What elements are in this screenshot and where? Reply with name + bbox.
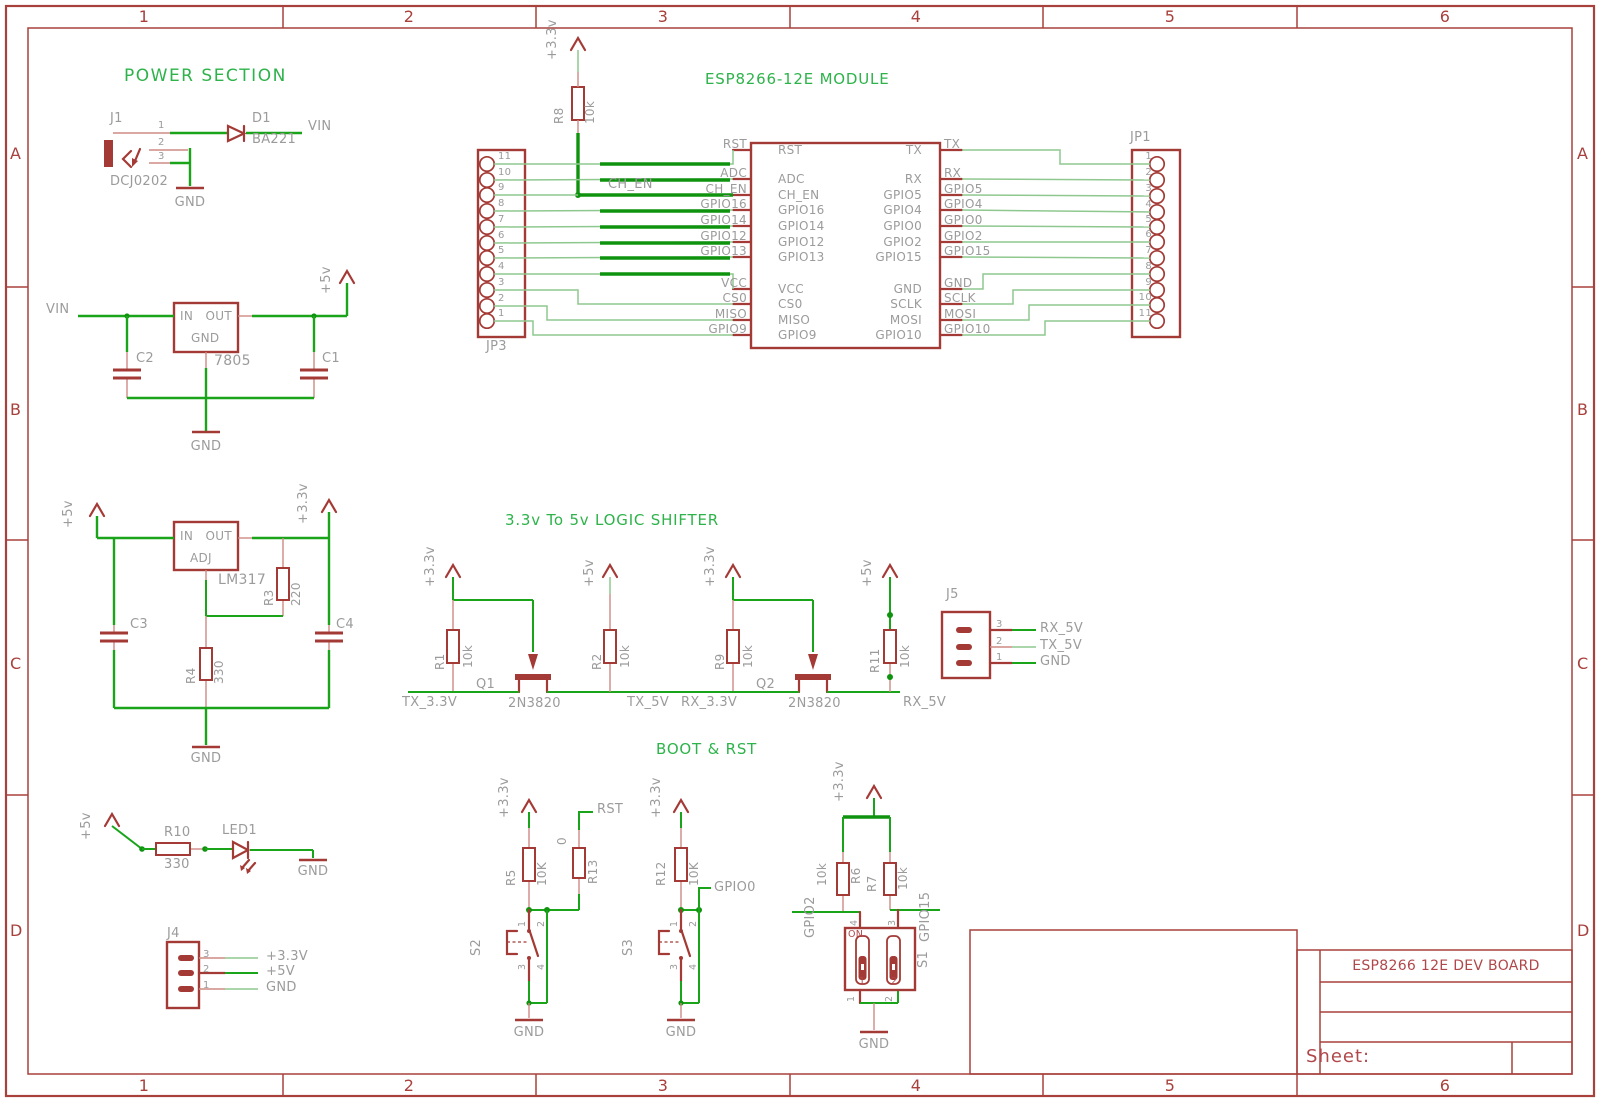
ref-j1: J1 bbox=[110, 112, 123, 126]
val-r8: 10k bbox=[584, 101, 597, 124]
jp1-pin-6: 6 bbox=[1145, 230, 1152, 241]
j1-pin-2: 2 bbox=[158, 138, 165, 149]
ref-s1: S1 bbox=[917, 951, 931, 968]
j4-pin-3: 3 bbox=[203, 950, 210, 961]
j4-net-5v: +5V bbox=[266, 965, 295, 979]
jp1-pin-10: 10 bbox=[1139, 293, 1152, 304]
ref-r10: R10 bbox=[164, 826, 190, 840]
pin-gnd: GND bbox=[894, 283, 922, 296]
gnd-label-j1: GND bbox=[175, 196, 206, 210]
pin-lm317-adj: ADJ bbox=[190, 552, 212, 565]
s2-pin-2: 2 bbox=[537, 921, 547, 927]
j5-net-tx5v: TX_5V bbox=[1040, 639, 1082, 653]
s2-pin-4: 4 bbox=[537, 964, 547, 970]
net-gpio15-right: GPIO15 bbox=[944, 245, 991, 258]
s2-pin-1: 1 bbox=[518, 921, 528, 927]
net-tx33: TX_3.3V bbox=[402, 696, 457, 710]
pin-chen: CH_EN bbox=[778, 189, 819, 202]
capacitor-c4[interactable] bbox=[315, 633, 343, 641]
val-r6: 10k bbox=[816, 863, 829, 886]
ref-r4: R4 bbox=[185, 667, 198, 684]
jp1-pin-11: 11 bbox=[1139, 309, 1152, 320]
frame-row-b-left: B bbox=[10, 402, 21, 419]
boot-s2 bbox=[507, 800, 593, 1020]
pin-gpio14: GPIO14 bbox=[778, 220, 825, 233]
ref-j5: J5 bbox=[946, 588, 959, 602]
pin-lm317-out: OUT bbox=[206, 530, 232, 543]
net-gpio9-left: GPIO9 bbox=[708, 323, 747, 336]
resistor-r3[interactable] bbox=[277, 568, 289, 600]
led-circuit bbox=[105, 814, 327, 860]
s1-pin-2: 2 bbox=[885, 996, 895, 1002]
resistor-r9[interactable] bbox=[727, 630, 739, 663]
supply-arrow-5v-b bbox=[90, 504, 104, 516]
resistor-r12[interactable] bbox=[675, 848, 687, 881]
resistor-r4[interactable] bbox=[200, 648, 212, 680]
frame-row-a-left: A bbox=[10, 146, 21, 163]
pin-gpio4: GPIO4 bbox=[883, 204, 922, 217]
pin-7805-gnd: GND bbox=[191, 332, 219, 345]
s2-pin-3: 3 bbox=[518, 964, 528, 970]
val-r12: 10K bbox=[688, 862, 701, 886]
title-esp-module: ESP8266-12E MODULE bbox=[705, 72, 889, 88]
frame-row-d-left: D bbox=[10, 923, 23, 940]
frame-col-4-bottom: 4 bbox=[911, 1078, 921, 1095]
j4-pin-2: 2 bbox=[203, 965, 210, 976]
ref-c2: C2 bbox=[136, 352, 154, 366]
j4-pin-1: 1 bbox=[203, 981, 210, 992]
net-vcc-left: VCC bbox=[721, 277, 747, 290]
pin-lm317-in: IN bbox=[180, 530, 193, 543]
pin-rx: RX bbox=[905, 173, 922, 186]
net-label-ch-en-wire: CH_EN bbox=[608, 178, 653, 192]
j1-pin-1: 1 bbox=[158, 121, 165, 132]
ref-r7: R7 bbox=[866, 875, 879, 892]
frame-row-a-right: A bbox=[1577, 146, 1588, 163]
rail-3v3-r1: +3.3v bbox=[424, 546, 438, 587]
schematic-canvas bbox=[0, 0, 1600, 1102]
j4-net-3v3: +3.3V bbox=[266, 950, 308, 964]
schematic-sheet: 1 2 3 4 5 6 1 2 3 4 5 6 A B C D A B C D … bbox=[0, 0, 1600, 1102]
capacitor-c3[interactable] bbox=[100, 633, 128, 641]
title-power-section: POWER SECTION bbox=[124, 68, 287, 86]
ref-r2: R2 bbox=[591, 653, 604, 670]
ref-r8: R8 bbox=[553, 107, 566, 124]
val-r7: 10k bbox=[897, 867, 910, 890]
rail-5v-r11: +5v bbox=[861, 559, 875, 587]
resistor-r10[interactable] bbox=[156, 843, 190, 855]
boot-s3 bbox=[659, 800, 711, 1020]
frame-col-3-top: 3 bbox=[658, 9, 668, 26]
resistor-r5[interactable] bbox=[523, 848, 535, 881]
pin-gpio9: GPIO9 bbox=[778, 329, 817, 342]
pin-gpio15: GPIO15 bbox=[875, 251, 922, 264]
ref-c1: C1 bbox=[322, 352, 340, 366]
jp3-pin-3: 3 bbox=[498, 278, 505, 289]
jp1-pin-8: 8 bbox=[1145, 262, 1152, 273]
part-lm317: LM317 bbox=[218, 573, 266, 588]
frame-col-5-bottom: 5 bbox=[1165, 1078, 1175, 1095]
s1-pin-3: 3 bbox=[888, 920, 898, 926]
part-q1: 2N3820 bbox=[508, 697, 561, 711]
title-block bbox=[970, 930, 1572, 1074]
pin-rst: RST bbox=[778, 144, 802, 157]
rail-3v3-s3: +3.3v bbox=[650, 777, 664, 818]
j5-net-rx5v: RX_5V bbox=[1040, 622, 1083, 636]
frame-col-6-top: 6 bbox=[1440, 9, 1450, 26]
gnd-label-7805: GND bbox=[191, 440, 222, 454]
pin-gpio5: GPIO5 bbox=[883, 189, 922, 202]
rail-3v3-r8: +3.3v bbox=[546, 19, 560, 60]
s1-pin-4: 4 bbox=[850, 920, 860, 926]
pin-sclk: SCLK bbox=[890, 298, 922, 311]
jp1-pin-1: 1 bbox=[1145, 152, 1152, 163]
frame-col-6-bottom: 6 bbox=[1440, 1078, 1450, 1095]
wires-7805 bbox=[78, 283, 347, 432]
jp1-pin-9: 9 bbox=[1145, 278, 1152, 289]
net-mosi-right: MOSI bbox=[944, 308, 976, 321]
s1-pin-1: 1 bbox=[847, 996, 857, 1002]
jp1-pin-2: 2 bbox=[1145, 168, 1152, 179]
net-label-vin: VIN bbox=[308, 120, 331, 134]
ref-r1: R1 bbox=[434, 653, 447, 670]
net-gpio0-s3: GPIO0 bbox=[714, 881, 756, 895]
rail-5v-7805: +5v bbox=[320, 266, 334, 294]
part-q2: 2N3820 bbox=[788, 697, 841, 711]
gnd-label-s1: GND bbox=[859, 1038, 890, 1052]
supply-arrow-3v3-a bbox=[322, 500, 336, 512]
gnd-label-s3: GND bbox=[666, 1026, 697, 1040]
frame-col-4-top: 4 bbox=[911, 9, 921, 26]
net-gpio10-right: GPIO10 bbox=[944, 323, 991, 336]
ref-j4: J4 bbox=[167, 927, 180, 941]
jp3-pin-1: 1 bbox=[498, 309, 505, 320]
gnd-label-s2: GND bbox=[514, 1026, 545, 1040]
supply-arrow-3v3-r8 bbox=[571, 38, 585, 50]
shifter-tx bbox=[408, 565, 723, 692]
net-tx-right: TX bbox=[944, 138, 960, 151]
frame-col-1-top: 1 bbox=[139, 9, 149, 26]
net-gpio5-right: GPIO5 bbox=[944, 183, 983, 196]
frame-col-2-bottom: 2 bbox=[404, 1078, 414, 1095]
ref-c3: C3 bbox=[130, 618, 148, 632]
pin-7805-in: IN bbox=[180, 310, 193, 323]
resistor-r6[interactable] bbox=[837, 863, 849, 895]
wires-module-to-jp1 bbox=[962, 150, 1150, 335]
frame-row-c-left: C bbox=[10, 656, 21, 673]
jp3-pin-2: 2 bbox=[498, 294, 505, 305]
frame-row-d-right: D bbox=[1577, 923, 1590, 940]
part-dcj0202: DCJ0202 bbox=[110, 175, 168, 189]
jp1-pin-3: 3 bbox=[1145, 184, 1152, 195]
jp3-pin-6: 6 bbox=[498, 231, 505, 242]
ref-q2: Q2 bbox=[756, 678, 775, 692]
ref-jp1: JP1 bbox=[1130, 131, 1151, 145]
s3-pin-2: 2 bbox=[689, 921, 699, 927]
frame-col-2-top: 2 bbox=[404, 9, 414, 26]
pin-mosi: MOSI bbox=[890, 314, 922, 327]
connector-j4[interactable] bbox=[167, 942, 258, 1008]
capacitor-c2[interactable] bbox=[113, 370, 141, 378]
net-tx5v: TX_5V bbox=[627, 696, 669, 710]
pin-gpio2: GPIO2 bbox=[883, 236, 922, 249]
pin-7805-out: OUT bbox=[206, 310, 232, 323]
val-r1: 10k bbox=[462, 645, 475, 668]
val-r4: 330 bbox=[213, 660, 226, 684]
diode-d1[interactable] bbox=[228, 126, 244, 141]
net-rx33: RX_3.3V bbox=[681, 696, 737, 710]
ref-d1: D1 bbox=[252, 112, 271, 126]
jp3-pin-5: 5 bbox=[498, 246, 505, 257]
title-logic-shifter: 3.3v To 5v LOGIC SHIFTER bbox=[505, 513, 719, 529]
led-led1[interactable] bbox=[233, 842, 255, 874]
part-ba221: BA221 bbox=[252, 133, 296, 147]
j5-pin-3: 3 bbox=[996, 620, 1003, 631]
pin-miso: MISO bbox=[778, 314, 810, 327]
jp3-pin-11: 11 bbox=[498, 152, 511, 163]
s1-on-label: ON bbox=[848, 930, 863, 940]
frame-col-3-bottom: 3 bbox=[658, 1078, 668, 1095]
pin-gpio16: GPIO16 bbox=[778, 204, 825, 217]
val-r13: 0 bbox=[556, 837, 569, 845]
capacitor-c1[interactable] bbox=[300, 370, 328, 378]
frame-row-c-right: C bbox=[1577, 656, 1588, 673]
pin-tx: TX bbox=[906, 144, 922, 157]
net-rst-left: RST bbox=[723, 138, 747, 151]
net-gnd-right: GND bbox=[944, 277, 972, 290]
net-rst-s2: RST bbox=[597, 803, 623, 817]
rail-3v3-s1: +3.3v bbox=[833, 761, 847, 802]
ref-r11: R11 bbox=[869, 648, 882, 673]
val-r9: 10k bbox=[742, 645, 755, 668]
titleblock-sheet-label: Sheet: bbox=[1306, 1048, 1370, 1067]
jp1-pin-4: 4 bbox=[1145, 200, 1152, 211]
resistor-r11[interactable] bbox=[884, 630, 896, 663]
rail-5v-r2: +5v bbox=[583, 559, 597, 587]
supply-arrow-5v-a bbox=[340, 271, 354, 283]
jp1-pin-7: 7 bbox=[1145, 246, 1152, 257]
ref-r3: R3 bbox=[263, 589, 276, 606]
ref-r6: R6 bbox=[850, 867, 863, 884]
jp1-pin-5: 5 bbox=[1145, 215, 1152, 226]
rail-3v3-s2: +3.3v bbox=[498, 777, 512, 818]
gnd-label-lm317: GND bbox=[191, 752, 222, 766]
jp3-pin-10: 10 bbox=[498, 168, 511, 179]
ref-s3: S3 bbox=[622, 939, 636, 956]
pin-gpio12: GPIO12 bbox=[778, 236, 825, 249]
frame-col-5-top: 5 bbox=[1165, 9, 1175, 26]
s3-pin-3: 3 bbox=[670, 964, 680, 970]
net-rx-right: RX bbox=[944, 167, 961, 180]
net-gpio13-left: GPIO13 bbox=[700, 245, 747, 258]
ref-jp3: JP3 bbox=[486, 340, 507, 354]
net-miso-left: MISO bbox=[715, 308, 747, 321]
ref-r9: R9 bbox=[714, 653, 727, 670]
j5-net-gnd: GND bbox=[1040, 655, 1071, 669]
s1-inner-2: 2 bbox=[891, 977, 897, 987]
gnd-label-led: GND bbox=[298, 865, 329, 879]
rail-5v-led: +5v bbox=[80, 812, 94, 840]
frame-row-b-right: B bbox=[1577, 402, 1588, 419]
resistor-r2[interactable] bbox=[604, 630, 616, 663]
part-7805: 7805 bbox=[214, 354, 251, 369]
net-gpio2-right: GPIO2 bbox=[944, 230, 983, 243]
net-gpio0-right: GPIO0 bbox=[944, 214, 983, 227]
net-gpio16-left: GPIO16 bbox=[700, 198, 747, 211]
pin-gpio0: GPIO0 bbox=[883, 220, 922, 233]
net-label-vin-7805: VIN bbox=[46, 303, 69, 317]
pin-vcc: VCC bbox=[778, 283, 804, 296]
resistor-r1[interactable] bbox=[447, 630, 459, 663]
net-gpio12-left: GPIO12 bbox=[700, 230, 747, 243]
ref-c4: C4 bbox=[336, 618, 354, 632]
net-adc-left: ADC bbox=[720, 167, 747, 180]
s1-inner-1: 1 bbox=[859, 977, 865, 987]
net-gpio4-right: GPIO4 bbox=[944, 198, 983, 211]
connector-j5[interactable] bbox=[942, 612, 1036, 678]
ref-r13: R13 bbox=[587, 859, 600, 884]
jp3-pin-7: 7 bbox=[498, 215, 505, 226]
rail-3v3-r9: +3.3v bbox=[704, 546, 718, 587]
net-gpio14-left: GPIO14 bbox=[700, 214, 747, 227]
frame-col-1-bottom: 1 bbox=[139, 1078, 149, 1095]
jp3-pin-8: 8 bbox=[498, 199, 505, 210]
ref-q1: Q1 bbox=[476, 678, 495, 692]
val-r2: 10k bbox=[619, 645, 632, 668]
resistor-r13[interactable] bbox=[573, 848, 585, 878]
net-rx5v: RX_5V bbox=[903, 696, 946, 710]
pin-gpio13: GPIO13 bbox=[778, 251, 825, 264]
j4-net-gnd: GND bbox=[266, 981, 297, 995]
titleblock-board-name: ESP8266 12E DEV BOARD bbox=[1352, 959, 1540, 974]
ref-r12: R12 bbox=[655, 861, 668, 886]
title-boot-rst: BOOT & RST bbox=[656, 742, 757, 758]
pin-gpio10: GPIO10 bbox=[875, 329, 922, 342]
drawing-frame bbox=[6, 6, 1594, 1096]
val-r11: 10k bbox=[899, 645, 912, 668]
ref-r5: R5 bbox=[505, 869, 518, 886]
net-gpio2-s1: GPIO2 bbox=[804, 896, 818, 938]
j5-pin-1: 1 bbox=[996, 653, 1003, 664]
rail-3v3-lm317: +3.3v bbox=[297, 483, 311, 524]
ref-led1: LED1 bbox=[222, 824, 257, 838]
ref-s2: S2 bbox=[470, 939, 484, 956]
net-sclk-right: SCLK bbox=[944, 292, 976, 305]
jp3-pin-9: 9 bbox=[498, 183, 505, 194]
pin-adc: ADC bbox=[778, 173, 805, 186]
esp8266-module[interactable] bbox=[733, 143, 962, 348]
val-r10: 330 bbox=[164, 858, 190, 872]
resistor-r7[interactable] bbox=[884, 863, 896, 895]
jp3-pin-4: 4 bbox=[498, 262, 505, 273]
net-gpio15-s1: GPIO15 bbox=[919, 892, 933, 942]
wire-r8 bbox=[575, 50, 581, 198]
s3-pin-4: 4 bbox=[689, 964, 699, 970]
s3-pin-1: 1 bbox=[670, 921, 680, 927]
rail-5v-lm317: +5v bbox=[62, 500, 76, 528]
val-r3: 220 bbox=[290, 582, 303, 606]
j5-pin-2: 2 bbox=[996, 637, 1003, 648]
net-cs0-left: CS0 bbox=[722, 292, 747, 305]
j1-pin-3: 3 bbox=[158, 152, 165, 163]
pin-cs0: CS0 bbox=[778, 298, 803, 311]
val-r5: 10K bbox=[536, 862, 549, 886]
net-chen-left: CH_EN bbox=[706, 183, 747, 196]
